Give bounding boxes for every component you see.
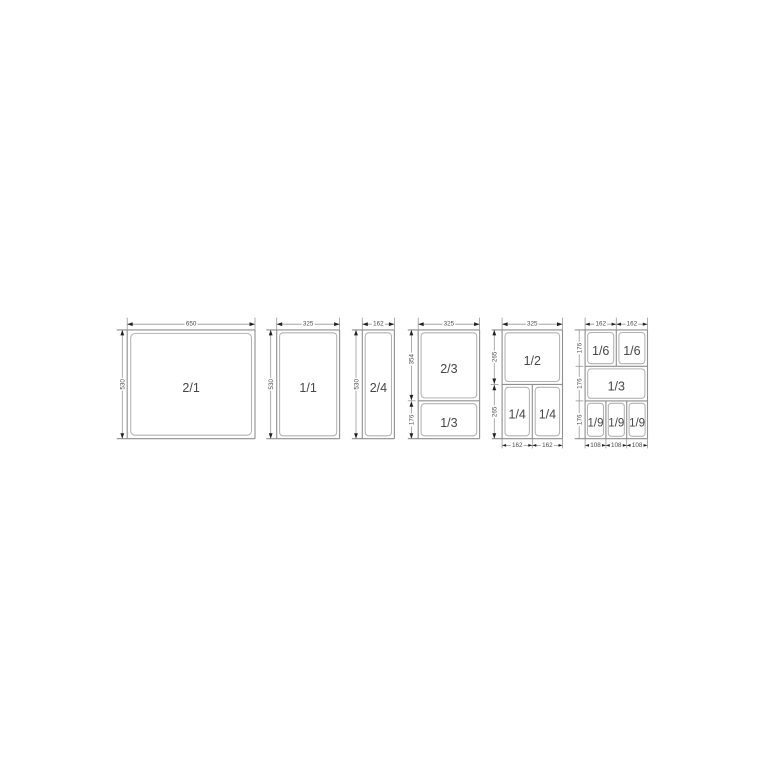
svg-text:530: 530	[268, 379, 275, 390]
svg-text:530: 530	[120, 379, 127, 390]
svg-text:176: 176	[577, 342, 584, 353]
svg-text:1/4: 1/4	[509, 408, 526, 422]
svg-text:325: 325	[527, 321, 538, 328]
svg-text:162: 162	[542, 442, 553, 449]
svg-text:265: 265	[492, 351, 499, 362]
svg-text:108: 108	[611, 442, 622, 449]
svg-text:108: 108	[590, 442, 601, 449]
svg-text:1/2: 1/2	[524, 354, 541, 368]
svg-text:162: 162	[373, 321, 384, 328]
svg-text:1/4: 1/4	[539, 408, 556, 422]
svg-text:1/9: 1/9	[629, 418, 645, 430]
svg-text:2/1: 2/1	[182, 381, 199, 395]
svg-text:530: 530	[353, 379, 360, 390]
svg-text:1/3: 1/3	[440, 416, 457, 430]
svg-text:325: 325	[303, 321, 314, 328]
svg-text:1/6: 1/6	[623, 344, 640, 358]
svg-text:2/3: 2/3	[440, 362, 457, 376]
svg-text:2/4: 2/4	[370, 381, 387, 395]
svg-text:265: 265	[492, 406, 499, 417]
svg-text:162: 162	[627, 321, 638, 328]
svg-text:354: 354	[409, 353, 416, 364]
svg-text:1/3: 1/3	[608, 380, 625, 394]
svg-text:1/1: 1/1	[299, 381, 316, 395]
svg-text:1/9: 1/9	[608, 418, 624, 430]
svg-text:176: 176	[577, 378, 584, 389]
svg-text:108: 108	[632, 442, 643, 449]
svg-text:176: 176	[409, 414, 416, 425]
svg-text:162: 162	[512, 442, 523, 449]
svg-text:162: 162	[595, 321, 606, 328]
svg-text:1/6: 1/6	[592, 344, 609, 358]
svg-text:650: 650	[186, 321, 197, 328]
svg-text:1/9: 1/9	[588, 418, 604, 430]
svg-text:176: 176	[577, 414, 584, 425]
svg-text:325: 325	[444, 321, 455, 328]
